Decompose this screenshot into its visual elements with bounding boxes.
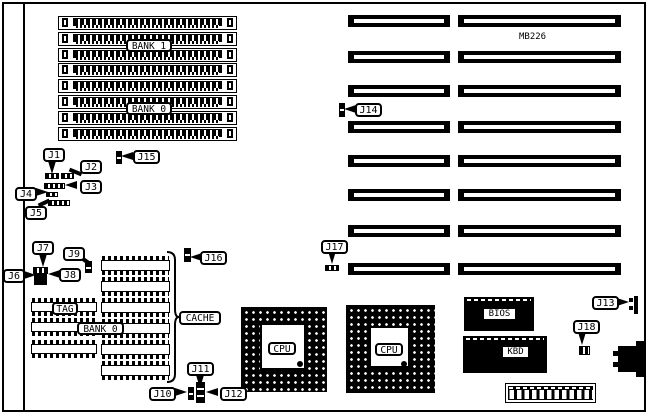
cpu2-pin1-dot — [401, 361, 407, 367]
simm-clip-right — [227, 65, 233, 74]
chip-pins — [102, 312, 169, 317]
isa-slot-segment — [348, 85, 450, 97]
chip-pins — [102, 270, 169, 275]
simm-pin-row-2 — [76, 25, 219, 28]
callout-j10-pointer — [175, 388, 187, 396]
simm-socket — [58, 16, 237, 30]
isa-slot-segment — [458, 189, 621, 201]
slot-stripe — [464, 125, 615, 129]
bank0-memory-label: BANK 0 — [126, 102, 172, 115]
isa-slot-segment — [458, 263, 621, 275]
slot-stripe — [464, 267, 615, 271]
callout-j17: J17 — [321, 240, 348, 254]
callout-j11: J11 — [187, 362, 214, 376]
isa-slot-segment — [348, 15, 450, 27]
connector-bottom-pins — [508, 389, 593, 400]
slot-stripe — [464, 55, 615, 59]
simm-clip-right — [227, 113, 233, 122]
simm-clip-left — [62, 50, 68, 59]
simm-socket — [58, 63, 237, 77]
chip-pins — [102, 375, 169, 380]
chip-pins — [32, 353, 96, 358]
callout-j7: J7 — [32, 241, 54, 255]
callout-j1: J1 — [43, 148, 65, 162]
isa-slot-segment — [348, 121, 450, 133]
cache-chip — [101, 340, 170, 359]
callout-j11-pointer — [196, 375, 204, 388]
callout-j15: J15 — [133, 150, 160, 164]
slot-stripe — [464, 229, 615, 233]
simm-socket — [58, 127, 237, 141]
callout-j10: J10 — [149, 387, 176, 401]
callout-j6: J6 — [3, 269, 25, 283]
isa-slot-segment — [458, 121, 621, 133]
cache-chip — [101, 298, 170, 317]
motherboard-layout-diagram: BANK 1 BANK 0 MB226 TAG BANK 0 CACHE CPU… — [0, 0, 648, 415]
callout-j9: J9 — [63, 247, 85, 261]
keyboard-din-connector-body — [618, 346, 637, 372]
cpu1-label: CPU — [268, 342, 296, 355]
callout-j14: J14 — [355, 103, 382, 117]
cache-chip — [31, 340, 97, 358]
isa-slot-segment — [348, 263, 450, 275]
keyboard-din-connector — [636, 341, 646, 377]
isa-slot-segment — [458, 155, 621, 167]
simm-clip-left — [62, 129, 68, 138]
jumper-pins-j5 — [48, 200, 70, 206]
power-connector — [505, 383, 596, 403]
callout-j5: J5 — [25, 206, 47, 220]
simm-pin-row-2 — [76, 120, 219, 123]
callout-j12: J12 — [220, 387, 247, 401]
simm-pin-row-2 — [76, 72, 219, 75]
cache-chip — [101, 361, 170, 380]
callout-j15-pointer — [121, 152, 133, 160]
callout-j6-pointer — [24, 271, 36, 279]
callout-j3-pointer — [65, 181, 77, 189]
cpu2-label: CPU — [375, 343, 403, 356]
cache-chip — [101, 277, 170, 296]
slot-stripe — [354, 193, 444, 197]
slot-stripe — [464, 19, 615, 23]
slot-stripe — [354, 19, 444, 23]
slot-stripe — [354, 159, 444, 163]
slot-stripe — [354, 229, 444, 233]
slot-stripe — [464, 193, 615, 197]
isa-slot-segment — [348, 155, 450, 167]
callout-j18: J18 — [573, 320, 600, 334]
isa-slot-segment — [348, 225, 450, 237]
slot-stripe — [354, 267, 444, 271]
callout-j3: J3 — [80, 180, 102, 194]
simm-clip-right — [227, 97, 233, 106]
jumper-pins-j2 — [61, 173, 74, 179]
bios-chip-pins — [467, 299, 531, 301]
simm-pin-row-2 — [76, 88, 219, 91]
jumper-j10 — [188, 387, 194, 400]
board-left-edge — [23, 2, 25, 410]
chip-pins — [102, 354, 169, 359]
callout-j7-pointer — [39, 254, 47, 267]
callout-j16: J16 — [200, 251, 227, 265]
simm-clip-left — [62, 113, 68, 122]
slot-stripe — [354, 55, 444, 59]
isa-slot-segment — [348, 51, 450, 63]
callout-j12-pointer — [206, 388, 218, 396]
din-tab-bottom — [613, 362, 618, 367]
simm-clip-left — [62, 65, 68, 74]
simm-clip-left — [62, 34, 68, 43]
simm-clip-left — [62, 97, 68, 106]
callout-j1-pointer — [48, 161, 56, 174]
simm-clip-left — [62, 81, 68, 90]
simm-clip-left — [62, 18, 68, 27]
simm-socket — [58, 79, 237, 93]
cache-label: CACHE — [179, 311, 221, 325]
jumper-pins-j17 — [325, 265, 339, 271]
cache-chip — [101, 256, 170, 275]
simm-pin-row-2 — [76, 57, 219, 60]
connector-j13-pin-bottom — [629, 306, 633, 310]
tag-label: TAG — [52, 302, 78, 315]
isa-slot-segment — [458, 85, 621, 97]
slot-stripe — [354, 89, 444, 93]
chip-pins — [102, 291, 169, 296]
simm-clip-right — [227, 81, 233, 90]
isa-slot-segment — [458, 51, 621, 63]
callout-j2: J2 — [80, 160, 102, 174]
callout-j4-pointer — [36, 188, 48, 196]
bank0-cache-label: BANK 0 — [77, 322, 124, 335]
connector-j13-pin-top — [629, 298, 633, 302]
bank1-label: BANK 1 — [126, 39, 172, 52]
callout-j8: J8 — [59, 268, 81, 282]
kbd-label: KBD — [502, 346, 529, 358]
slot-stripe — [354, 125, 444, 129]
cpu1-pin1-dot — [297, 361, 303, 367]
din-tab-top — [613, 351, 618, 356]
simm-clip-right — [227, 34, 233, 43]
model-label: MB226 — [519, 32, 546, 42]
slot-stripe — [464, 89, 615, 93]
callout-j13: J13 — [592, 296, 619, 310]
simm-pin-row-2 — [76, 136, 219, 139]
connector-j13 — [634, 296, 638, 314]
isa-slot-segment — [458, 15, 621, 27]
bios-label: BIOS — [483, 308, 516, 320]
isa-slot-segment — [348, 189, 450, 201]
slot-stripe — [464, 159, 615, 163]
simm-clip-right — [227, 50, 233, 59]
isa-slot-segment — [458, 225, 621, 237]
simm-clip-right — [227, 129, 233, 138]
callout-j4: J4 — [15, 187, 37, 201]
jumper-pins-j18 — [579, 346, 590, 355]
simm-clip-right — [227, 18, 233, 27]
kbd-chip-pins — [466, 338, 544, 340]
